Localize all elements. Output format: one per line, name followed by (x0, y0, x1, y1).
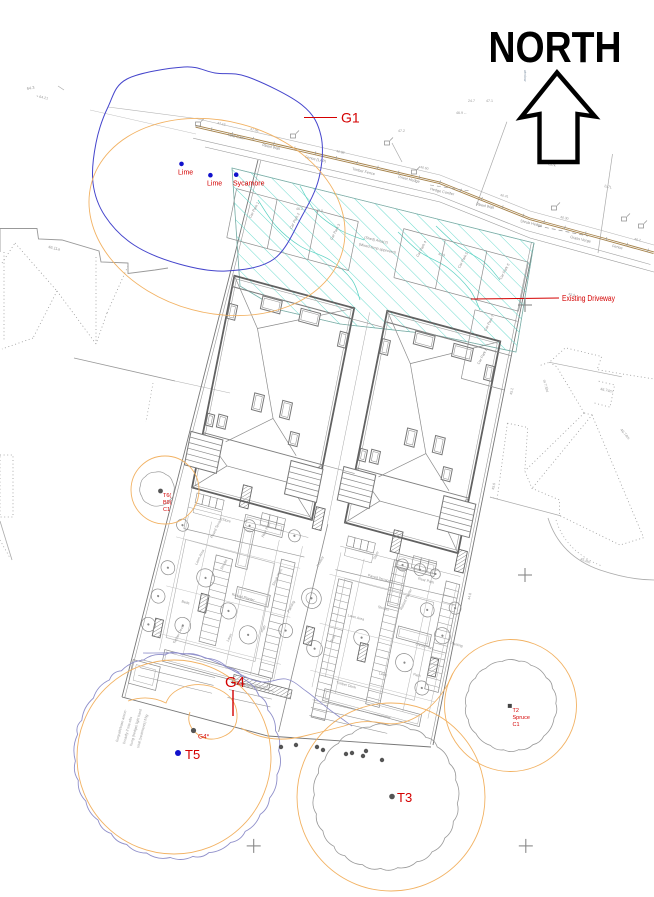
svg-text:Rbwd Wall: Rbwd Wall (476, 202, 495, 210)
svg-text:47.1: 47.1 (486, 99, 493, 103)
svg-text:Privacy: Privacy (316, 555, 325, 568)
svg-text:Timber Fence: Timber Fence (352, 167, 376, 176)
svg-text:Spruce: Spruce (513, 715, 530, 721)
svg-text:T5: T5 (185, 747, 200, 762)
svg-text:47.2: 47.2 (398, 129, 405, 133)
svg-text:G4: G4 (225, 674, 245, 691)
svg-text:46.30: 46.30 (560, 215, 569, 221)
svg-text:45.2: 45.2 (509, 388, 514, 396)
svg-text:C1: C1 (163, 507, 170, 513)
svg-text:Existing Driveway: Existing Driveway (562, 294, 615, 303)
svg-text:24.7: 24.7 (468, 99, 475, 103)
svg-text:2x7L: 2x7L (604, 184, 612, 190)
svg-text:G4*: G4* (198, 734, 210, 741)
svg-text:46.9 --: 46.9 -- (456, 111, 467, 115)
svg-text:44.8: 44.8 (467, 593, 472, 601)
svg-text:Lawn Area: Lawn Area (347, 613, 364, 621)
svg-text:Store: Store (222, 517, 231, 523)
svg-text:+ 64.21: + 64.21 (36, 94, 49, 101)
svg-text:46.74m: 46.74m (600, 387, 613, 394)
svg-text:Timber Deck: Timber Deck (172, 625, 185, 645)
svg-text:46.11a: 46.11a (48, 244, 62, 252)
svg-text:Shrubs: Shrubs (220, 558, 229, 570)
svg-text:C1: C1 (513, 722, 520, 728)
svg-text:Wall 0.5m: Wall 0.5m (228, 133, 245, 141)
svg-text:Lime: Lime (178, 170, 193, 177)
svg-text:T2: T2 (513, 708, 519, 714)
svg-text:NORTH: NORTH (489, 24, 622, 72)
svg-text:46.2: 46.2 (634, 237, 641, 242)
svg-text:Lawn Area: Lawn Area (194, 549, 205, 566)
svg-text:Grass Verge: Grass Verge (570, 235, 591, 244)
svg-text:Shrubs: Shrubs (378, 605, 390, 612)
svg-text:Sycamore: Sycamore (233, 181, 265, 188)
svg-text:Path: Path (413, 672, 421, 678)
svg-text:46.60: 46.60 (420, 165, 429, 171)
svg-text:Planting: Planting (287, 600, 296, 613)
svg-text:Car Park 8: Car Park 8 (477, 348, 489, 365)
svg-text:47.13: 47.13 (217, 121, 226, 127)
svg-text:T3: T3 (397, 790, 412, 805)
svg-text:Planting: Planting (450, 641, 463, 648)
svg-text:B9(: B9( (163, 500, 172, 506)
svg-text:Lime: Lime (207, 181, 222, 188)
svg-text:46.41: 46.41 (500, 193, 509, 199)
svg-text:Path: Path (260, 625, 267, 634)
svg-text:46.74m: 46.74m (619, 428, 630, 440)
svg-text:64.3: 64.3 (26, 85, 35, 91)
svg-text:T6(: T6( (163, 493, 171, 499)
svg-text:45.0: 45.0 (491, 483, 496, 491)
svg-text:46.88: 46.88 (336, 149, 345, 155)
svg-text:Lawn: Lawn (379, 671, 388, 677)
svg-text:m 7.5ht: m 7.5ht (542, 379, 549, 393)
svg-text:Beds: Beds (181, 599, 190, 605)
svg-text:G1: G1 (341, 110, 360, 126)
